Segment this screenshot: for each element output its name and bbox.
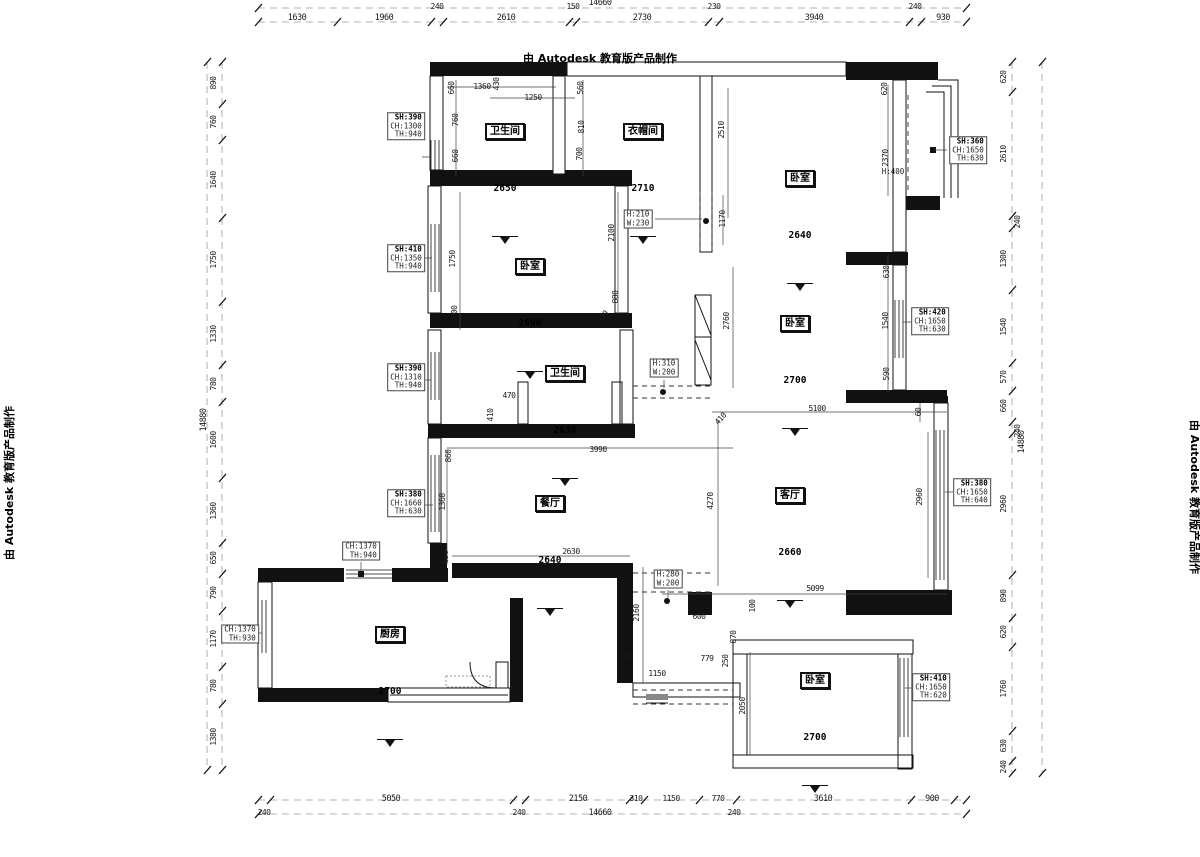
dim-bottom-outer: 240 — [513, 809, 526, 817]
door-w: W:200 — [657, 579, 680, 588]
dim-int: 880 — [612, 291, 620, 304]
dim-top: 240 — [431, 3, 444, 11]
room-name: 厨房 — [375, 626, 405, 643]
room-height: 2690 — [517, 275, 544, 372]
room-height: 2640 — [537, 512, 564, 609]
dim-int: 60 — [915, 408, 923, 417]
room-name: 餐厅 — [535, 495, 565, 512]
dim-int: 5100 — [808, 405, 825, 413]
elevation-triangle-icon — [525, 372, 535, 379]
dim-int: 2510 — [718, 121, 726, 138]
dim-right: 1760 — [1000, 680, 1008, 697]
dim-top: 240 — [909, 3, 922, 11]
dim-int: 660 — [448, 82, 456, 95]
elevation-triangle-icon — [560, 479, 570, 486]
dim-int: 2050 — [739, 697, 747, 714]
elevation-triangle-icon — [385, 740, 395, 747]
elevation-triangle-icon — [638, 237, 648, 244]
dim-int: 590 — [883, 368, 891, 381]
room-height: 2700 — [782, 332, 809, 429]
dim-int: 2160 — [633, 604, 641, 621]
window-th: TH:640 — [956, 496, 988, 505]
door-w: W:200 — [653, 368, 676, 377]
window-th: TH:630 — [914, 325, 946, 334]
dim-int: 470 — [503, 392, 516, 400]
dim-left: 1360 — [210, 502, 218, 519]
dim-top: 230 — [708, 3, 721, 11]
dim-int: 1360 — [473, 83, 490, 91]
room-name: 卫生间 — [545, 365, 585, 382]
window-tag: SH:390 CH:1300 TH:940 — [387, 112, 425, 140]
dim-left: 780 — [210, 378, 218, 391]
dim-right: 890 — [1000, 590, 1008, 603]
autodesk-credit-left: 由 Autodesk 教育版产品制作 — [0, 420, 76, 560]
elevation-triangle-icon — [785, 601, 795, 608]
dim-int: 1750 — [449, 250, 457, 267]
dim-left: 1380 — [210, 728, 218, 745]
dim-right: 240 — [1000, 761, 1008, 774]
elevation-triangle-icon — [795, 284, 805, 291]
room-height: 2700 — [802, 689, 829, 786]
room-name: 卧室 — [780, 315, 810, 332]
walls-outline — [258, 62, 948, 769]
dim-bottom: 3610 — [814, 795, 832, 804]
window-th: TH:940 — [390, 262, 422, 271]
dim-left: 1170 — [210, 630, 218, 647]
door-tag: H:310 W:200 — [650, 359, 679, 378]
dim-right: 620 — [1000, 626, 1008, 639]
room-name: 卧室 — [785, 170, 815, 187]
dim-int: 2630 — [562, 548, 579, 556]
dim-bottom: 770 — [712, 795, 725, 803]
dim-int: 600 — [693, 613, 706, 621]
dim-bottom: 900 — [925, 795, 939, 804]
dim-top: 2730 — [633, 14, 651, 23]
dim-top: 930 — [936, 14, 950, 23]
dim-left: 1750 — [210, 251, 218, 268]
room-height: 2650 — [492, 140, 519, 237]
dim-bottom: 5050 — [382, 795, 400, 804]
dim-right: 660 — [1000, 400, 1008, 413]
dim-int: 3990 — [589, 446, 606, 454]
dim-left: 790 — [210, 587, 218, 600]
dim-left: 1330 — [210, 325, 218, 342]
autodesk-credit-bottom: 由 Autodesk 教育版产品制作 — [523, 837, 677, 857]
dim-int: 410 — [487, 409, 495, 422]
dim-left: 890 — [210, 77, 218, 90]
dim-int: 250 — [722, 655, 730, 668]
room-label-bathroom-2: 卫生间 2630 — [545, 361, 585, 486]
dim-bottom: 310 — [630, 795, 643, 803]
dim-top: 150 — [567, 3, 580, 11]
appliance-box — [446, 676, 490, 687]
room-height: 2640 — [787, 187, 814, 284]
room-name: 卫生间 — [485, 123, 525, 140]
window-th: TH:940 — [390, 381, 422, 390]
door-dot — [660, 389, 666, 395]
dim-left: 780 — [210, 680, 218, 693]
room-label-bedroom-mr: 卧室 2700 — [780, 311, 810, 436]
room-label-kitchen: 厨房 2700 — [375, 622, 405, 747]
walls-solid — [258, 62, 952, 702]
window-tag: SH:410 CH:1650 TH:620 — [912, 673, 950, 701]
dim-int: 660 — [452, 150, 460, 163]
dim-right: 630 — [1000, 740, 1008, 753]
dim-int: 2760 — [723, 312, 731, 329]
dim-int: 600 — [451, 306, 459, 319]
autodesk-credit-top: 由 Autodesk 教育版产品制作 — [523, 0, 677, 125]
dim-int: 2370 — [882, 149, 890, 166]
elevation-triangle-icon — [545, 609, 555, 616]
room-height: 2660 — [777, 504, 804, 601]
dim-right: 1540 — [1000, 318, 1008, 335]
dim-bottom-outer: 240 — [258, 809, 271, 817]
dim-int: 2100 — [608, 224, 616, 241]
dim-left: 650 — [210, 552, 218, 565]
dim-int: 1150 — [648, 670, 665, 678]
window-th: TH:620 — [915, 691, 947, 700]
dim-int: 560 — [577, 82, 585, 95]
dim-right: 240 — [1014, 425, 1022, 438]
room-name: 卧室 — [800, 672, 830, 689]
dim-int: 100 — [749, 600, 757, 613]
room-height: 2630 — [552, 382, 579, 479]
window-tag: SH:380 CH:1660 TH:630 — [387, 489, 425, 517]
window-tag: SH:390 CH:1310 TH:940 — [387, 363, 425, 391]
dim-top: 2610 — [497, 14, 515, 23]
dim-int: 630 — [883, 266, 891, 279]
dim-int: 779 — [701, 655, 714, 663]
dim-bottom-outer: 240 — [728, 809, 741, 817]
dim-int: 650 — [442, 551, 450, 564]
door-dot — [664, 598, 670, 604]
elevation-triangle-icon — [810, 786, 820, 793]
dim-bottom: 2150 — [569, 795, 587, 804]
room-name: 客厅 — [775, 487, 805, 504]
dim-int: 430 — [493, 78, 501, 91]
room-label-bathroom-1: 卫生间 2650 — [485, 119, 525, 244]
door-tag: H:280 W:200 — [654, 570, 683, 589]
room-name: 卧室 — [515, 258, 545, 275]
dim-int: 5099 — [806, 585, 823, 593]
autodesk-credit-right: 由 Autodesk 教育版产品制作 — [1128, 420, 1200, 560]
window-th: TH:940 — [345, 551, 377, 560]
window-tag: SH:410 CH:1350 TH:940 — [387, 244, 425, 272]
window-th: TH:630 — [390, 507, 422, 516]
room-name: 衣帽间 — [623, 123, 663, 140]
dim-top: 1630 — [288, 14, 306, 23]
dim-bottom-overall: 14660 — [588, 809, 611, 818]
elevation-triangle-icon — [500, 237, 510, 244]
window-tag: CH:1370 TH:930 — [221, 625, 259, 644]
window-tag: CH:1370 TH:940 — [342, 542, 380, 561]
dim-int: 1170 — [719, 210, 727, 227]
window-th: TH:630 — [952, 154, 984, 163]
dim-left: 760 — [210, 116, 218, 129]
dim-left-overall: 14880 — [200, 408, 209, 431]
room-label-living: 客厅 2660 — [775, 483, 805, 608]
dim-top: 1960 — [375, 14, 393, 23]
dim-int: 2960 — [916, 488, 924, 505]
dim-right: 570 — [1000, 371, 1008, 384]
dim-int: 1360 — [439, 493, 447, 510]
dim-int: 700 — [576, 148, 584, 161]
dim-bottom: 1150 — [662, 795, 679, 803]
dim-int: 620 — [881, 83, 889, 96]
window-tag: SH:360 CH:1650 TH:630 — [949, 136, 987, 164]
dim-int: 870 — [730, 631, 738, 644]
floor-plan-sheet: 由 Autodesk 教育版产品制作 由 Autodesk 教育版产品制作 由 … — [0, 0, 1200, 857]
window-th: TH:930 — [224, 634, 256, 643]
dim-int: 810 — [578, 121, 586, 134]
door-tag-h400: H:400 — [882, 168, 905, 177]
dim-int: 860 — [445, 450, 453, 463]
door-dot — [703, 218, 709, 224]
dim-right: 2960 — [1000, 495, 1008, 512]
window-tag: SH:380 CH:1650 TH:640 — [953, 478, 991, 506]
dim-top: 3940 — [805, 14, 823, 23]
room-label-bedroom-ml: 卧室 2690 — [515, 254, 545, 379]
elevation-triangle-icon — [790, 429, 800, 436]
room-label-dining: 餐厅 2640 — [535, 491, 565, 616]
dim-right: 620 — [1000, 71, 1008, 84]
door-tag: H:210 W:230 — [624, 210, 653, 229]
room-label-bedroom-br: 卧室 2700 — [800, 668, 830, 793]
dim-right: 240 — [1014, 216, 1022, 229]
dim-top-overall: 14660 — [588, 0, 611, 7]
dim-left: 1600 — [210, 431, 218, 448]
dim-int: 1540 — [882, 312, 890, 329]
dim-left: 1640 — [210, 171, 218, 188]
dim-right: 1300 — [1000, 250, 1008, 267]
dim-int: 4270 — [707, 492, 715, 509]
dim-int: 760 — [452, 114, 460, 127]
dim-right: 2610 — [1000, 145, 1008, 162]
dim-int: 1250 — [524, 94, 541, 102]
room-height: 2700 — [377, 643, 404, 740]
door-w: W:230 — [627, 219, 650, 228]
window-tag: SH:420 CH:1650 TH:630 — [911, 307, 949, 335]
window-th: TH:940 — [390, 130, 422, 139]
room-label-bedroom-tr: 卧室 2640 — [785, 166, 815, 291]
